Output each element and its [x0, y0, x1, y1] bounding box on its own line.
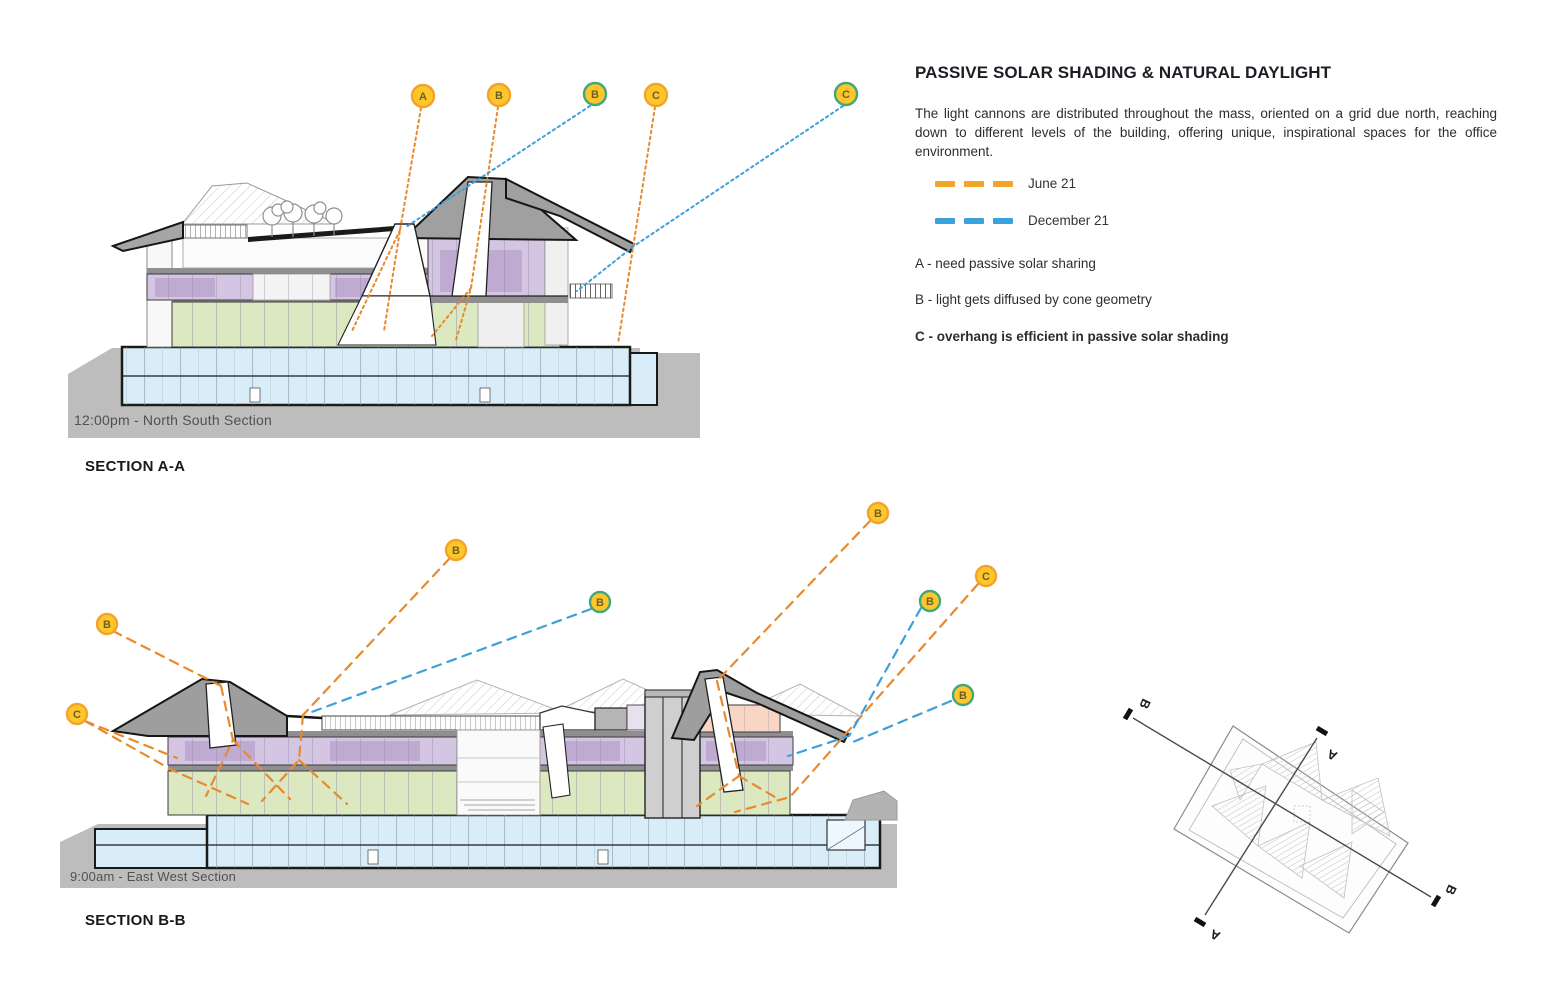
marker-a-june: A [412, 85, 434, 107]
marker-letter: B [959, 690, 967, 702]
marker-b-june: B [488, 84, 510, 106]
marker-letter: C [73, 709, 81, 721]
keyplan-label-a: A [1207, 926, 1222, 944]
leader-line-orange [618, 107, 655, 344]
marker-letter: B [495, 90, 503, 102]
leader-line-blue [577, 106, 843, 291]
atrium-stairs [457, 730, 540, 815]
marker-b-december: B [584, 83, 606, 105]
leader-line-blue [853, 701, 951, 742]
marker-letter: C [652, 90, 660, 102]
marker-letter: C [982, 571, 990, 583]
marker-letter: B [452, 545, 460, 557]
marker-b-june: B [868, 503, 888, 523]
marker-letter: B [103, 619, 111, 631]
basement-floors-bb [95, 815, 880, 868]
keyplan: BBAA [1125, 696, 1460, 943]
marker-b-june: B [446, 540, 466, 560]
marker-c-june: C [67, 704, 87, 724]
ground-wedge [845, 791, 897, 820]
marker-letter: B [874, 508, 882, 520]
leader-line-orange [303, 558, 450, 715]
keyplan-label-b: B [1136, 696, 1154, 711]
section-aa-drawing [68, 177, 700, 438]
marker-b-june: B [97, 614, 117, 634]
diagram-canvas: ABBCC [0, 0, 1556, 1000]
marker-b-december: B [920, 591, 940, 611]
marker-b-december: B [590, 592, 610, 612]
marker-c-december: C [835, 83, 857, 105]
marker-c-june: C [976, 566, 996, 586]
marker-letter: B [926, 596, 934, 608]
leader-line-blue [788, 608, 921, 756]
leader-line-orange [113, 631, 221, 686]
basement-floors [122, 347, 657, 405]
marker-b-december: B [953, 685, 973, 705]
leader-line-orange [717, 521, 870, 681]
marker-letter: B [591, 89, 599, 101]
marker-letter: C [842, 89, 850, 101]
keyplan-label-a: A [1324, 746, 1339, 764]
marker-letter: A [419, 91, 427, 103]
section-bb-drawing [60, 670, 897, 888]
marker-c-june: C [645, 84, 667, 106]
keyplan-label-b: B [1442, 882, 1460, 897]
marker-letter: B [596, 597, 604, 609]
